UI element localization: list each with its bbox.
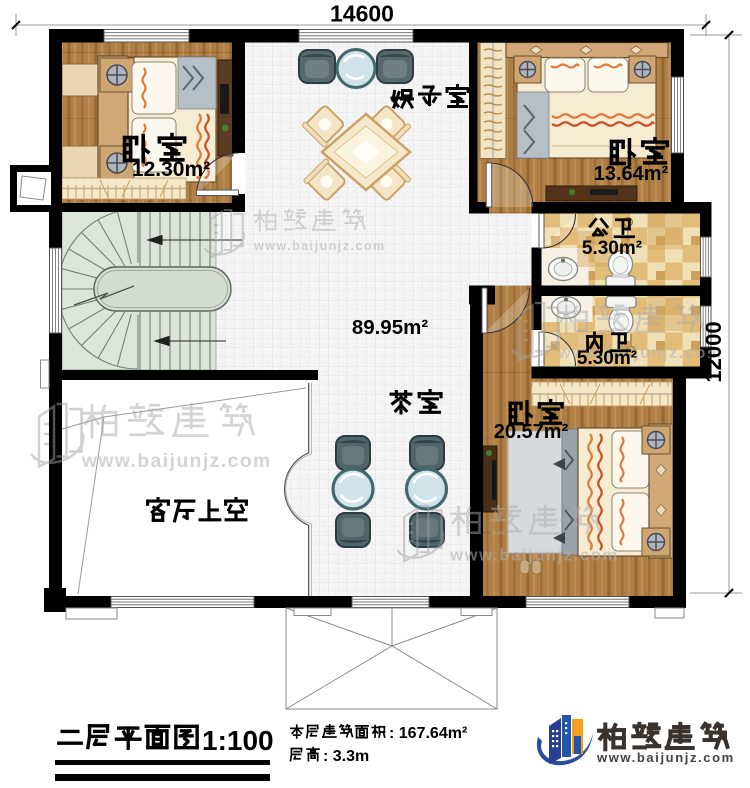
svg-text:13.64m²: 13.64m² [594, 163, 669, 185]
svg-text:5.30m²: 5.30m² [582, 238, 642, 259]
svg-text:www.baijunjz.com: www.baijunjz.com [449, 546, 619, 565]
svg-text:20.57m²: 20.57m² [494, 421, 569, 443]
svg-text:1:100: 1:100 [202, 725, 274, 756]
svg-text:14600: 14600 [330, 1, 394, 27]
svg-text:www.baijunjz.com: www.baijunjz.com [253, 239, 386, 253]
svg-text:89.95m²: 89.95m² [352, 316, 429, 339]
svg-text:: 167.64m²: : 167.64m² [389, 725, 467, 742]
svg-text:12.30m²: 12.30m² [132, 158, 210, 181]
svg-text:: 3.3m: : 3.3m [323, 748, 369, 765]
svg-text:5.30m²: 5.30m² [577, 348, 637, 369]
svg-text:12000: 12000 [701, 321, 726, 382]
svg-text:www.baijunjz.com: www.baijunjz.com [596, 750, 735, 765]
svg-text:www.baijunjz.com: www.baijunjz.com [81, 451, 272, 472]
